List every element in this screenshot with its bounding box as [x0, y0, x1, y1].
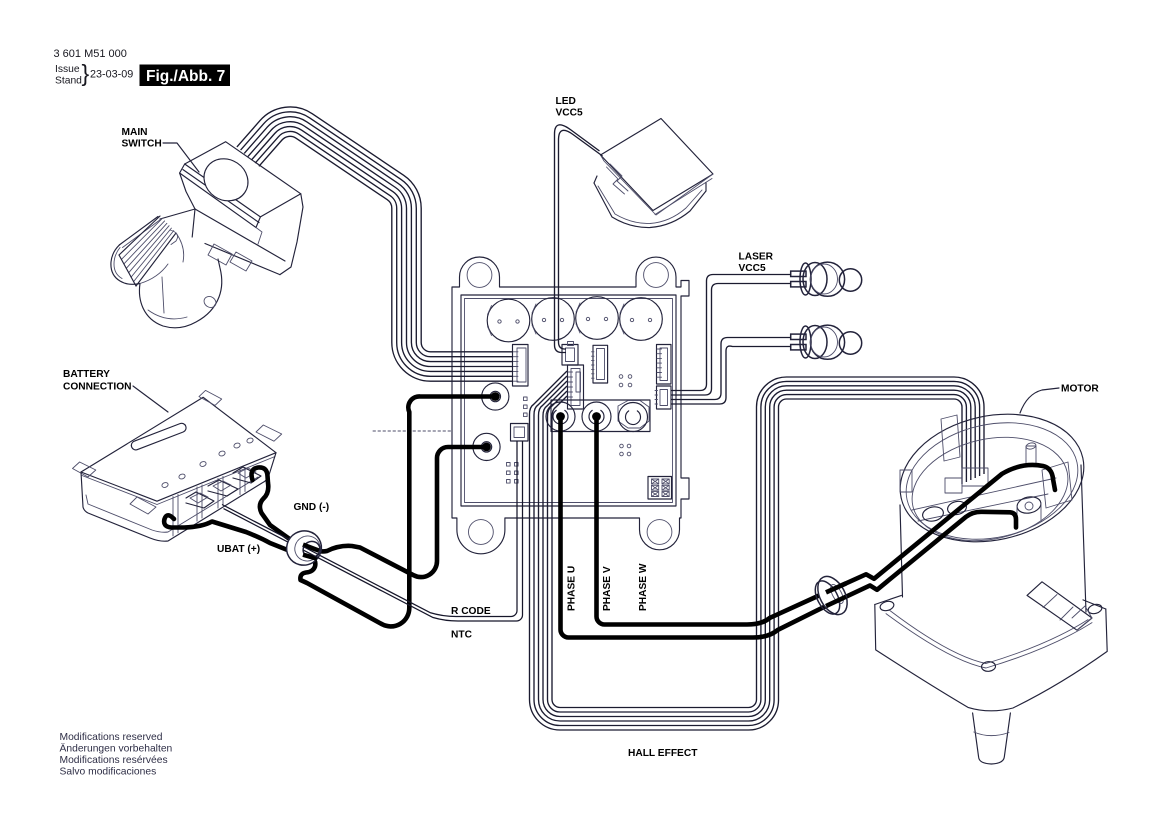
svg-text:R CODE: R CODE: [451, 606, 491, 617]
svg-text:GND (-): GND (-): [294, 502, 330, 513]
svg-text:BATTERY: BATTERY: [63, 369, 110, 380]
svg-text:3 601 M51 000: 3 601 M51 000: [54, 48, 127, 60]
svg-text:Issue: Issue: [55, 64, 80, 75]
svg-text:Modifications resérvées: Modifications resérvées: [60, 755, 168, 766]
svg-text:Änderungen vorbehalten: Änderungen vorbehalten: [60, 743, 173, 755]
svg-text:LASER: LASER: [739, 252, 774, 263]
svg-text:UBAT (+): UBAT (+): [217, 544, 260, 555]
svg-text:MOTOR: MOTOR: [1061, 384, 1099, 395]
svg-text:SWITCH: SWITCH: [122, 139, 162, 150]
svg-text:PHASE V: PHASE V: [602, 566, 613, 611]
svg-text:}: }: [82, 60, 90, 86]
svg-text:Salvo modificaciones: Salvo modificaciones: [60, 767, 157, 778]
svg-text:23-03-09: 23-03-09: [90, 69, 133, 81]
svg-text:VCC5: VCC5: [739, 263, 767, 274]
svg-text:PHASE U: PHASE U: [567, 566, 578, 611]
svg-text:HALL EFFECT: HALL EFFECT: [628, 748, 698, 759]
svg-text:Modifications reserved: Modifications reserved: [60, 732, 163, 743]
svg-text:PHASE W: PHASE W: [638, 563, 649, 611]
svg-text:VCC5: VCC5: [556, 108, 584, 119]
svg-text:MAIN: MAIN: [122, 127, 148, 138]
svg-text:CONNECTION: CONNECTION: [63, 382, 131, 393]
svg-text:LED: LED: [556, 96, 576, 107]
svg-text:NTC: NTC: [451, 630, 473, 641]
svg-text:Fig./Abb. 7: Fig./Abb. 7: [146, 68, 225, 85]
svg-text:Stand: Stand: [55, 76, 82, 87]
